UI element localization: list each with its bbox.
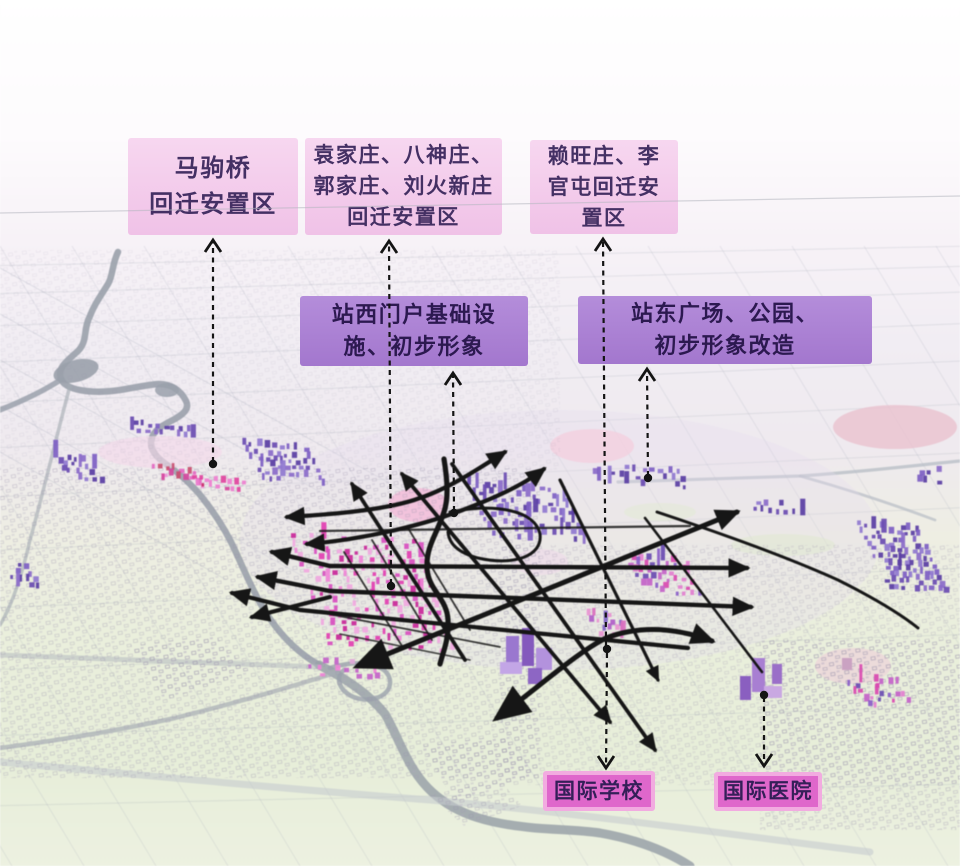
map-rendering [0, 0, 960, 866]
annotation-line: 国际学校 [547, 775, 651, 807]
annotation-international-hospital: 国际医院 [714, 772, 822, 811]
annotation-line: 站西门户基础设 [300, 299, 528, 331]
annotation-majuqiao: 马驹桥 回迁安置区 [128, 138, 298, 235]
annotation-line: 马驹桥 [128, 151, 298, 187]
annotation-line: 郭家庄、刘火新庄 [305, 171, 502, 202]
annotation-line: 初步形象改造 [578, 330, 872, 362]
annotation-yuanjiazhuang: 袁家庄、八神庄、 郭家庄、刘火新庄 回迁安置区 [305, 138, 502, 235]
urban-planning-map: 马驹桥 回迁安置区 袁家庄、八神庄、 郭家庄、刘火新庄 回迁安置区 赖旺庄、李 … [0, 0, 960, 866]
annotation-line: 回迁安置区 [128, 187, 298, 223]
annotation-line: 置区 [530, 203, 678, 234]
annotation-international-school: 国际学校 [543, 771, 655, 811]
annotation-line: 国际医院 [718, 776, 818, 807]
annotation-zhandong: 站东广场、公园、 初步形象改造 [578, 296, 872, 364]
annotation-line: 施、初步形象 [300, 331, 528, 363]
annotation-line: 袁家庄、八神庄、 [305, 140, 502, 171]
annotation-line: 赖旺庄、李 [530, 141, 678, 172]
annotation-line: 回迁安置区 [305, 202, 502, 233]
annotation-line: 站东广场、公园、 [578, 298, 872, 330]
annotation-line: 官屯回迁安 [530, 172, 678, 203]
annotation-laiwangzhuang: 赖旺庄、李 官屯回迁安 置区 [530, 140, 678, 234]
annotation-zhanxi: 站西门户基础设 施、初步形象 [300, 296, 528, 366]
